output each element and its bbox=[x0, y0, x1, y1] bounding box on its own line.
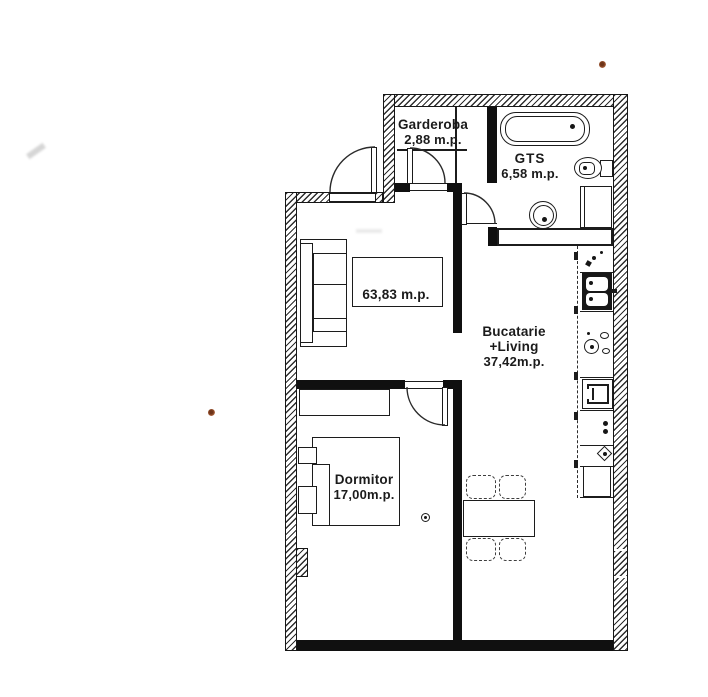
partition-gts-bottom bbox=[497, 228, 613, 246]
dining-chair bbox=[466, 475, 496, 499]
shower-cabinet-edge bbox=[584, 187, 585, 227]
faucet-valve-dot bbox=[603, 452, 607, 456]
refrigerator bbox=[583, 466, 611, 497]
partition-gts-left bbox=[487, 107, 497, 183]
bucatarie-name-line2: +Living bbox=[482, 339, 545, 354]
partition-bedroom-kitchen bbox=[453, 389, 462, 640]
wall-bottom bbox=[285, 640, 628, 651]
floor-plan: Garderoba 2,88 m.p. GTS 6,58 m.p. 63,83 … bbox=[0, 0, 708, 697]
sink-drain bbox=[589, 281, 593, 285]
gts-door-leaf bbox=[461, 193, 467, 225]
sink-faucet bbox=[611, 289, 617, 293]
wall-left bbox=[285, 192, 297, 651]
oven-inner-bar bbox=[592, 388, 594, 400]
pillow bbox=[298, 447, 317, 464]
counter-item-dot bbox=[600, 251, 603, 254]
sofa-back bbox=[300, 243, 313, 343]
bed-sheet-line bbox=[329, 465, 330, 525]
toilet-bowl-inner bbox=[579, 162, 595, 175]
room-label-gts: GTS 6,58 m.p. bbox=[501, 151, 558, 181]
room-label-garderoba: Garderoba 2,88 m.p. bbox=[398, 117, 468, 147]
oven-inner-gap bbox=[585, 389, 590, 399]
cooktop-burner-small bbox=[600, 332, 609, 339]
room-label-bucatarie-living: Bucatarie +Living 37,42m.p. bbox=[482, 324, 545, 369]
dormitor-area: 17,00m.p. bbox=[333, 487, 394, 502]
total-area-label: 63,83 m.p. bbox=[362, 287, 429, 302]
garderoba-door-threshold bbox=[410, 190, 447, 191]
entry-door-arc bbox=[330, 147, 375, 192]
counter-divider bbox=[580, 445, 613, 446]
garderoba-door-leaf bbox=[407, 148, 413, 184]
partition-gts-bottom-cap bbox=[488, 227, 497, 246]
cooktop-burner-center bbox=[590, 345, 594, 349]
cooktop-burner-small bbox=[602, 348, 610, 354]
partition-garderoba-bottom-left bbox=[395, 183, 410, 192]
wall-entry-jog-right bbox=[375, 192, 383, 203]
entry-threshold-line bbox=[330, 201, 375, 203]
dining-chair bbox=[499, 475, 526, 499]
counter-divider bbox=[580, 377, 613, 378]
bedroom-door-leaf bbox=[442, 387, 448, 426]
bedroom-door-arc bbox=[407, 387, 445, 425]
dining-chair bbox=[499, 538, 526, 561]
dresser bbox=[299, 389, 390, 416]
bed-sheet-line bbox=[312, 464, 330, 465]
bedroom-door-threshold bbox=[405, 381, 443, 382]
oven-inner bbox=[587, 384, 609, 404]
cooktop-dot bbox=[587, 332, 590, 335]
dining-table bbox=[463, 500, 535, 537]
toilet-detail-dot bbox=[583, 166, 587, 170]
scan-speck-left bbox=[208, 409, 215, 416]
wall-joint-line bbox=[614, 549, 627, 551]
garderoba-area: 2,88 m.p. bbox=[398, 132, 468, 147]
garderoba-door-threshold bbox=[410, 183, 447, 184]
floor-symbol-dot bbox=[424, 516, 427, 519]
sink-drain bbox=[589, 297, 593, 301]
bucatarie-name-line1: Bucatarie bbox=[482, 324, 545, 339]
scan-speck-top bbox=[599, 61, 606, 68]
counter-tick bbox=[574, 372, 578, 380]
bathtub-drain bbox=[570, 124, 575, 129]
room-label-dormitor: Dormitor 17,00m.p. bbox=[333, 472, 394, 502]
counter-item-dot bbox=[592, 256, 596, 260]
dining-chair bbox=[466, 538, 496, 561]
scan-smudge bbox=[26, 143, 46, 159]
partition-bedroom-top bbox=[297, 380, 405, 389]
gts-area: 6,58 m.p. bbox=[501, 166, 558, 181]
counter-tick bbox=[574, 306, 578, 314]
counter-tick bbox=[574, 252, 578, 260]
garderoba-name: Garderoba bbox=[398, 117, 468, 132]
washbasin-inner bbox=[533, 205, 554, 226]
wall-pilaster-left bbox=[296, 548, 308, 577]
gts-name: GTS bbox=[501, 151, 558, 166]
counter-item-square bbox=[585, 260, 592, 267]
gts-door-arc bbox=[464, 193, 495, 224]
scan-smudge-living bbox=[356, 229, 382, 233]
wall-top bbox=[383, 94, 628, 107]
counter-tick bbox=[574, 460, 578, 468]
counter-tick bbox=[574, 412, 578, 420]
counter-divider bbox=[580, 311, 613, 312]
entry-threshold-line bbox=[330, 192, 375, 194]
counter-divider bbox=[580, 410, 613, 411]
entry-door-leaf bbox=[371, 147, 377, 193]
washbasin-drain bbox=[542, 217, 547, 222]
bathtub-inner bbox=[505, 116, 585, 142]
bedroom-door-threshold bbox=[405, 388, 443, 389]
wall-garderoba-left bbox=[383, 94, 395, 203]
pillow bbox=[298, 486, 317, 514]
appliance-knob bbox=[603, 421, 608, 426]
bucatarie-area: 37,42m.p. bbox=[482, 354, 545, 369]
dormitor-name: Dormitor bbox=[333, 472, 394, 487]
wall-joint-line bbox=[614, 576, 627, 578]
gts-door-threshold bbox=[464, 223, 497, 224]
sofa-seat bbox=[313, 253, 347, 332]
garderoba-door-arc bbox=[410, 148, 445, 183]
wall-right bbox=[613, 94, 628, 651]
total-area-value: 63,83 m.p. bbox=[362, 287, 429, 302]
counter-divider bbox=[580, 497, 613, 498]
sofa-cushion-line bbox=[313, 318, 347, 319]
sofa-cushion-line bbox=[313, 284, 347, 285]
appliance-knob bbox=[603, 429, 608, 434]
